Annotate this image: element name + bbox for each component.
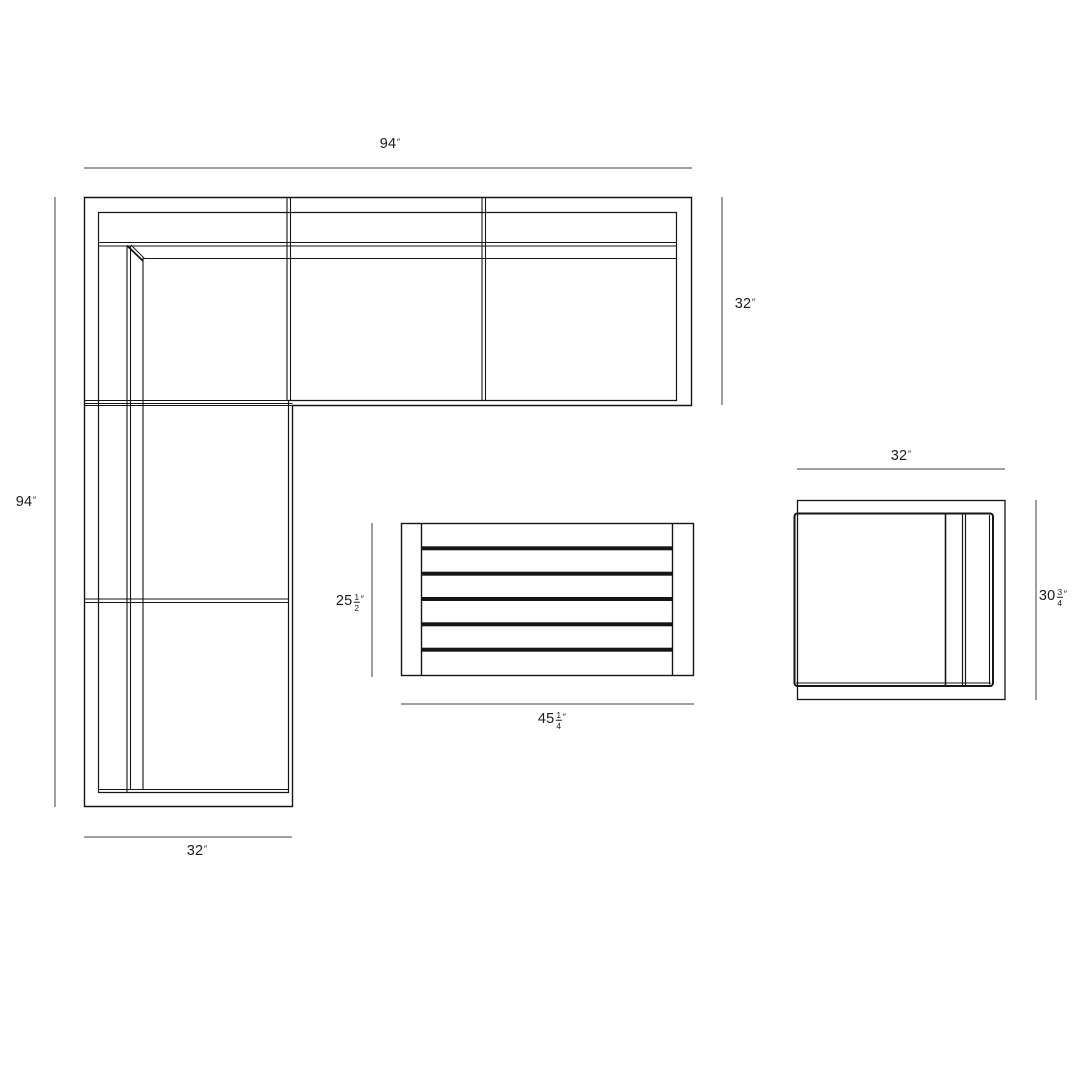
chaise-width-unit: ″ bbox=[204, 844, 207, 853]
chair-depth-unit: ″ bbox=[1064, 589, 1067, 598]
chaise-width-value: 32 bbox=[187, 844, 204, 859]
sofa-depth-unit: ″ bbox=[752, 297, 755, 306]
table-width-fraction: 1 4 bbox=[555, 710, 562, 730]
chair-outer-outline bbox=[798, 501, 1006, 700]
table-width-unit: ″ bbox=[563, 712, 566, 721]
sofa-depth-label: 32 ″ bbox=[735, 297, 755, 312]
sofa-width-value: 94 bbox=[380, 137, 397, 152]
chair-cushion-frame bbox=[795, 514, 994, 687]
arm-corner-diagonal-1 bbox=[127, 246, 143, 262]
sofa-width-unit: ″ bbox=[397, 137, 400, 146]
chaise-width-label: 32 ″ bbox=[187, 844, 207, 859]
table-slat-separators bbox=[422, 546, 673, 651]
table-depth-whole: 25 bbox=[336, 594, 353, 609]
drawing-canvas: 94 ″ 32 ″ 94 ″ 32 ″ 25 1 2 ″ 45 1 4 ″ 32… bbox=[0, 0, 1080, 1080]
table-depth-fraction-numerator: 1 bbox=[353, 592, 360, 603]
sectional-sofa-plan bbox=[85, 198, 692, 807]
chair-depth-label: 30 3 4 ″ bbox=[1039, 589, 1067, 608]
sofa-outer-outline bbox=[85, 198, 692, 807]
table-depth-label: 25 1 2 ″ bbox=[336, 594, 364, 613]
table-width-fraction-numerator: 1 bbox=[555, 710, 562, 721]
table-width-fraction-denominator: 4 bbox=[556, 721, 561, 731]
table-depth-fraction: 1 2 bbox=[353, 592, 360, 612]
chair-width-value: 32 bbox=[891, 449, 908, 464]
table-slat-separator-5 bbox=[422, 648, 673, 652]
table-slat-separator-2 bbox=[422, 572, 673, 576]
lounge-chair-plan bbox=[795, 501, 1006, 700]
table-slat-separator-4 bbox=[422, 622, 673, 626]
table-slat-separator-1 bbox=[422, 546, 673, 550]
table-width-label: 45 1 4 ″ bbox=[538, 712, 566, 731]
chair-depth-whole: 30 bbox=[1039, 589, 1056, 604]
chair-depth-fraction: 3 4 bbox=[1056, 587, 1063, 607]
table-slat-separator-3 bbox=[422, 597, 673, 601]
table-depth-fraction-denominator: 2 bbox=[354, 603, 359, 613]
chair-width-label: 32 ″ bbox=[891, 449, 911, 464]
sofa-length-value: 94 bbox=[16, 495, 33, 510]
dimension-lines bbox=[55, 168, 1036, 837]
chair-depth-fraction-numerator: 3 bbox=[1056, 587, 1063, 598]
coffee-table-plan bbox=[402, 524, 694, 676]
sofa-depth-value: 32 bbox=[735, 297, 752, 312]
sofa-length-unit: ″ bbox=[33, 495, 36, 504]
chair-depth-fraction-denominator: 4 bbox=[1057, 598, 1062, 608]
sofa-width-label: 94 ″ bbox=[380, 137, 400, 152]
table-depth-unit: ″ bbox=[361, 594, 364, 603]
furniture-plan-svg bbox=[0, 0, 1080, 1080]
chair-width-unit: ″ bbox=[908, 449, 911, 458]
sofa-length-label: 94 ″ bbox=[16, 495, 36, 510]
table-width-whole: 45 bbox=[538, 712, 555, 727]
sofa-inner-frame bbox=[99, 213, 677, 793]
